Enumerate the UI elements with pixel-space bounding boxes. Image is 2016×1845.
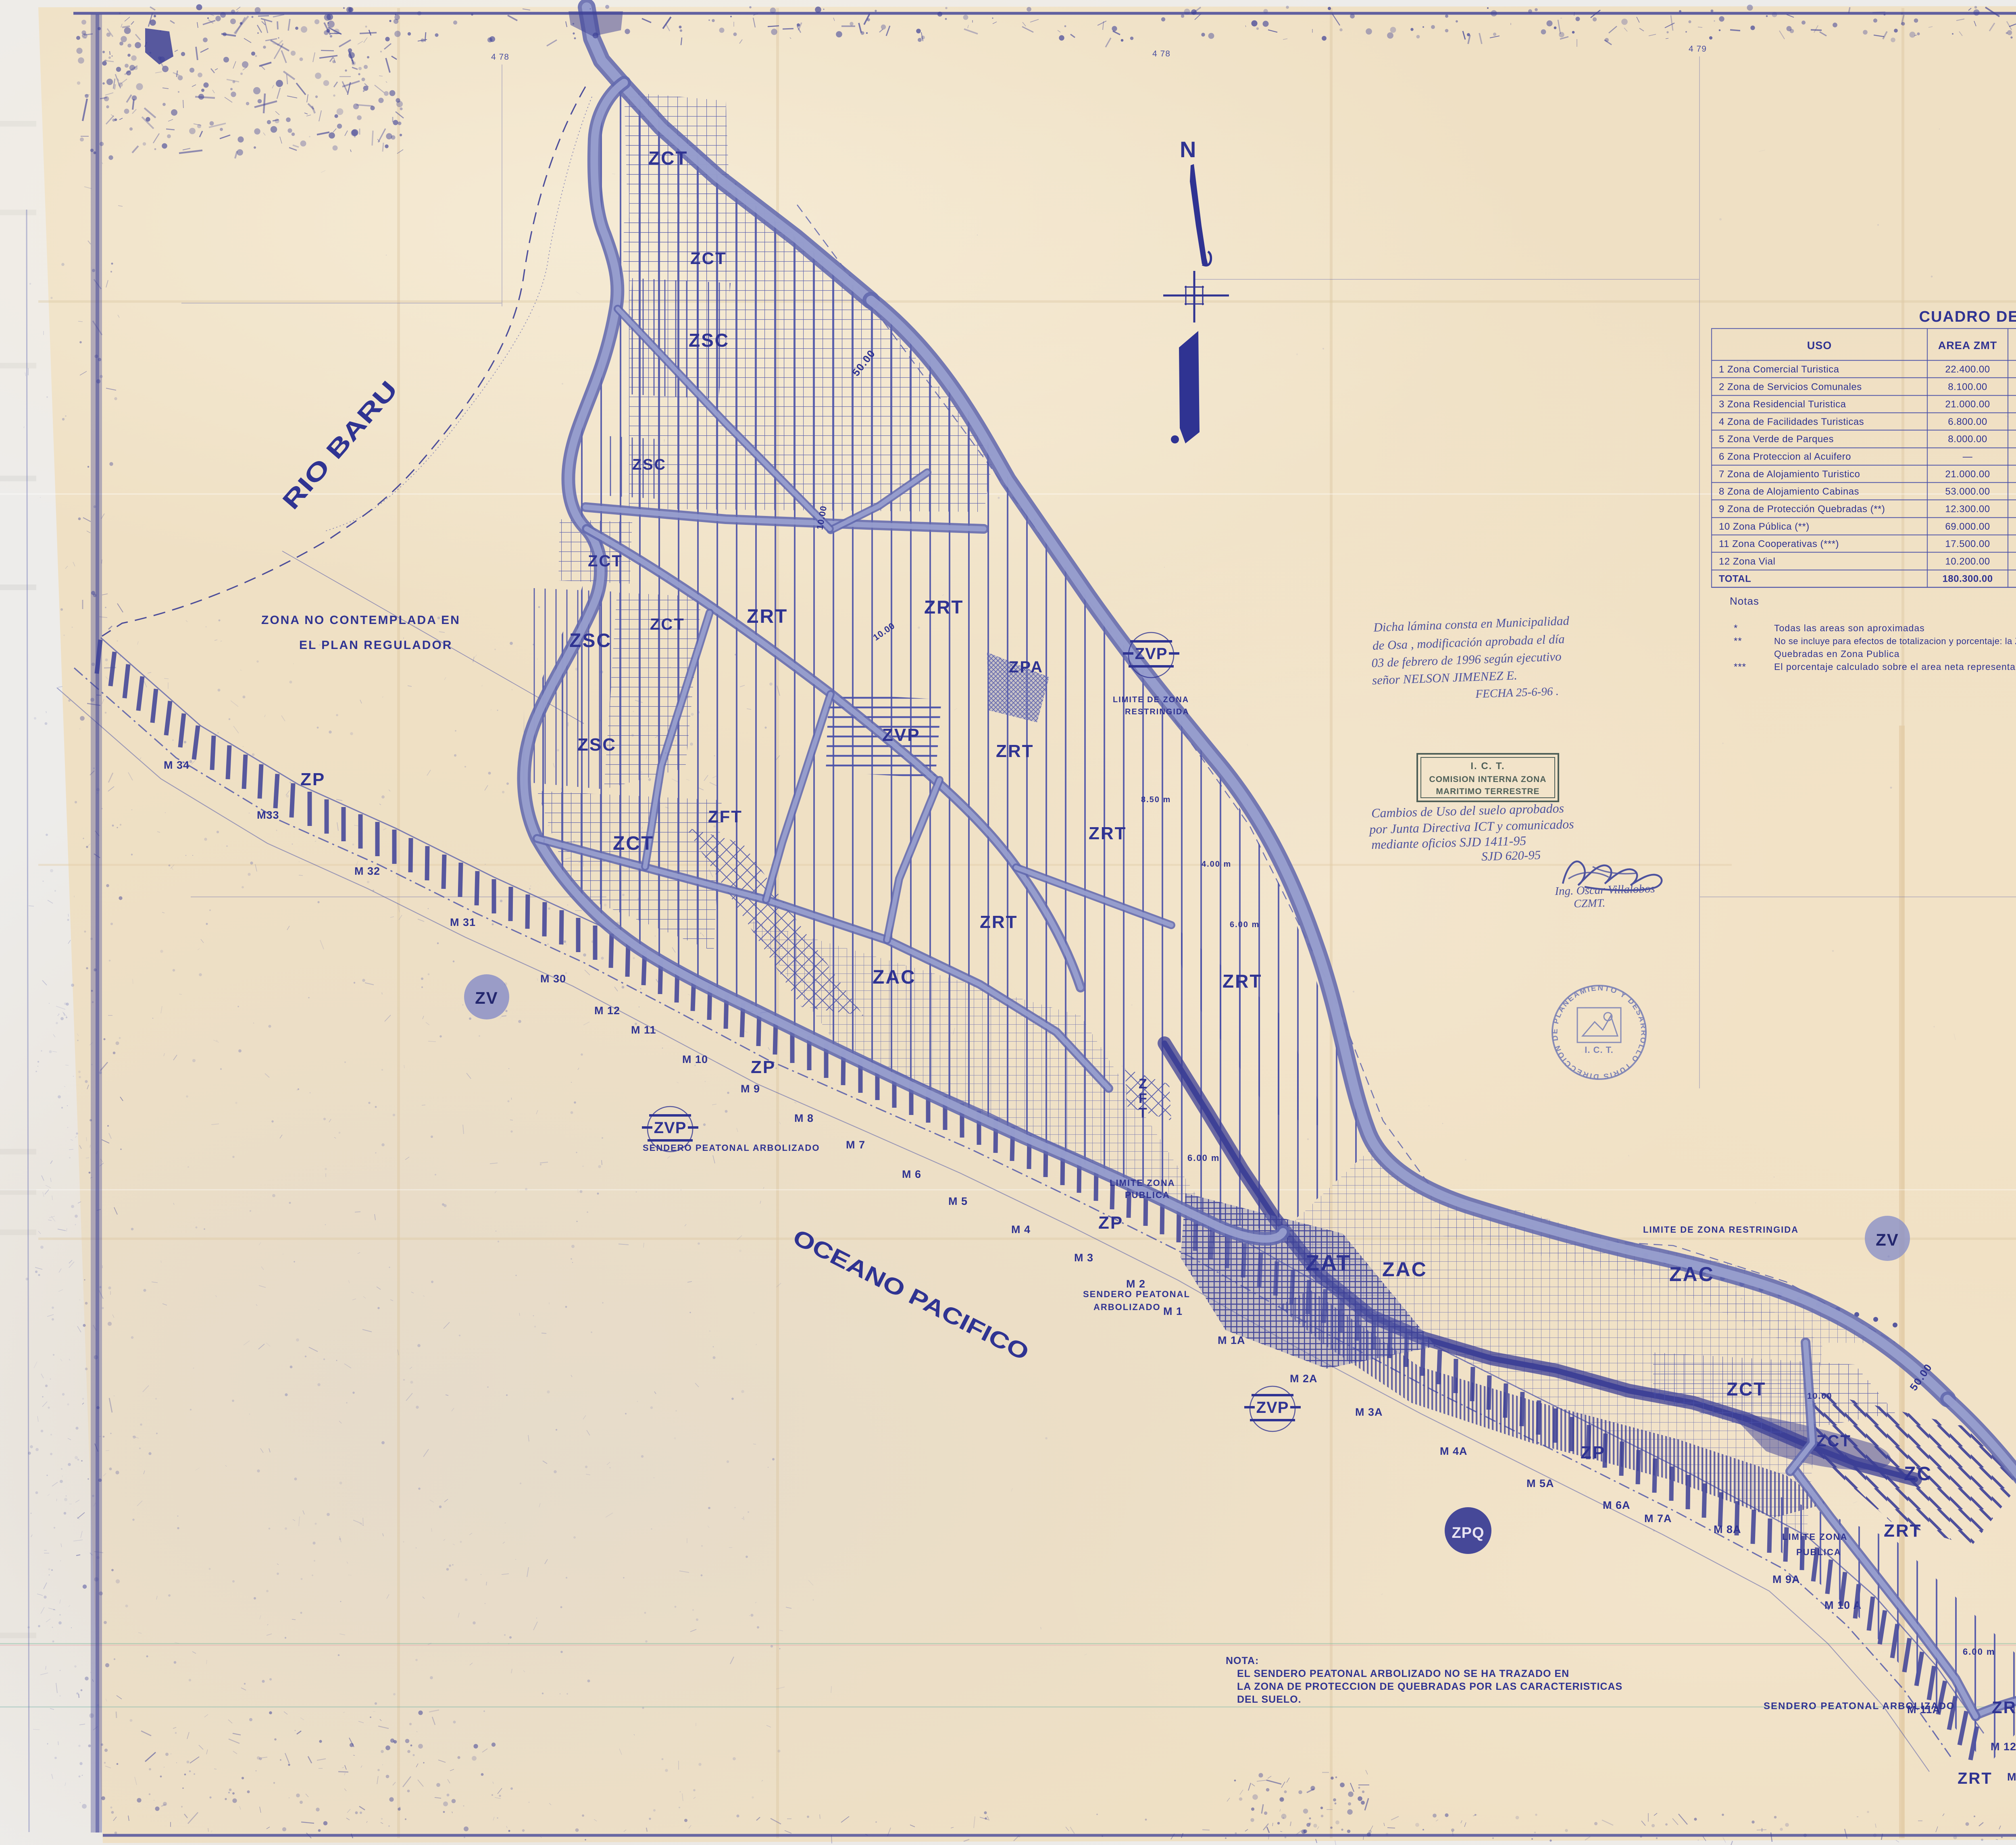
svg-text:TOTAL: TOTAL [1719, 574, 1751, 584]
svg-text:ZSC: ZSC [577, 735, 616, 755]
svg-text:M 4A: M 4A [1440, 1445, 1468, 1457]
svg-text:M 7A: M 7A [1644, 1512, 1672, 1525]
svg-text:M33: M33 [257, 809, 279, 821]
svg-text:M 30: M 30 [540, 973, 566, 985]
svg-text:M 2: M 2 [1126, 1278, 1145, 1290]
svg-text:ZAC: ZAC [1669, 1263, 1714, 1285]
svg-text:SJD 620-95: SJD 620-95 [1481, 848, 1541, 863]
svg-text:ZRT: ZRT [1223, 971, 1262, 992]
svg-text:PUBLICA: PUBLICA [1796, 1547, 1841, 1557]
svg-text:ZVP: ZVP [654, 1119, 687, 1137]
svg-text:I. C. T.: I. C. T. [1470, 761, 1505, 772]
svg-text:ZCT: ZCT [588, 552, 623, 570]
svg-text:ZP: ZP [1581, 1443, 1606, 1462]
svg-text:ZRT: ZRT [1089, 824, 1127, 843]
svg-text:ZV: ZV [475, 988, 498, 1007]
svg-text:ZRT: ZRT [1884, 1521, 1922, 1541]
svg-text:N: N [1180, 137, 1196, 162]
svg-text:53.000.00: 53.000.00 [1945, 486, 1990, 497]
svg-text:Notas: Notas [1730, 595, 1759, 607]
svg-text:ZCT: ZCT [613, 833, 654, 854]
svg-text:ZRT: ZRT [924, 597, 964, 618]
svg-text:USO: USO [1807, 339, 1832, 352]
svg-text:LIMITE DE ZONA RESTRINGIDA: LIMITE DE ZONA RESTRINGIDA [1643, 1225, 1799, 1235]
svg-text:21.000.00: 21.000.00 [1945, 469, 1990, 480]
svg-text:RESTRINGIDA: RESTRINGIDA [1125, 707, 1189, 716]
svg-text:8.100.00: 8.100.00 [1948, 381, 1987, 392]
svg-text:M 34: M 34 [164, 759, 190, 771]
svg-text:M 10: M 10 [682, 1053, 708, 1065]
svg-text:4 79: 4 79 [1689, 44, 1707, 54]
svg-text:M 5: M 5 [948, 1195, 968, 1207]
svg-text:**: ** [1734, 636, 1742, 647]
svg-text:4.00 m: 4.00 m [1202, 860, 1231, 869]
svg-text:ZC: ZC [1904, 1463, 1932, 1485]
svg-text:8 Zona de Alojamiento Cabinas: 8 Zona de Alojamiento Cabinas [1719, 486, 1859, 497]
svg-text:180.300.00: 180.300.00 [1942, 574, 1993, 584]
svg-text:NOTA:: NOTA: [1226, 1655, 1259, 1666]
svg-text:ZAC: ZAC [1382, 1258, 1427, 1281]
svg-text:M 11: M 11 [631, 1024, 656, 1036]
svg-text:M 31: M 31 [450, 916, 476, 928]
svg-text:M 7: M 7 [846, 1139, 865, 1151]
svg-text:M 8A: M 8A [1714, 1523, 1741, 1535]
svg-text:CUADRO DE AREAS (*): CUADRO DE AREAS (*) [1919, 308, 2016, 325]
svg-text:El porcentaje calculado sobre: El porcentaje calculado sobre el area ne… [1774, 661, 2016, 672]
svg-text:7 Zona de Alojamiento Turisti: 7 Zona de Alojamiento Turistico [1719, 469, 1860, 480]
svg-text:ZCT: ZCT [690, 249, 727, 268]
svg-text:8.000.00: 8.000.00 [1948, 434, 1987, 445]
svg-text:EL SENDERO PEATONAL ARBOLIZ: EL SENDERO PEATONAL ARBOLIZADO NO SE HA … [1237, 1668, 1569, 1679]
svg-text:ZFT: ZFT [708, 807, 743, 826]
svg-text:T: T [1139, 1105, 1147, 1121]
svg-text:ZPQ: ZPQ [1452, 1525, 1484, 1541]
svg-text:9 Zona de Protección Quebrada: 9 Zona de Protección Quebradas (**) [1719, 503, 1885, 514]
svg-text:***: *** [1734, 661, 1746, 672]
svg-text:17.500.00: 17.500.00 [1945, 539, 1990, 549]
svg-text:M 8: M 8 [794, 1112, 814, 1124]
svg-text:12 Zona Vial: 12 Zona Vial [1719, 556, 1775, 567]
svg-text:DEL SUELO.: DEL SUELO. [1237, 1694, 1302, 1705]
svg-text:No se incluye para efectos de: No se incluye para efectos de totalizaci… [1774, 636, 2016, 646]
svg-text:F: F [1139, 1091, 1147, 1106]
svg-text:ZCT: ZCT [650, 616, 685, 633]
svg-text:8.50 m: 8.50 m [1141, 795, 1171, 804]
svg-text:EL PLAN REGULADOR: EL PLAN REGULADOR [299, 639, 452, 652]
svg-text:MARITIMO TERRESTRE: MARITIMO TERRESTRE [1436, 787, 1539, 796]
svg-text:ZCT: ZCT [1727, 1379, 1766, 1400]
svg-text:LIMITE ZONA: LIMITE ZONA [1110, 1178, 1175, 1188]
svg-text:ZAC: ZAC [873, 967, 916, 988]
svg-text:ZP: ZP [1098, 1213, 1123, 1233]
svg-text:ZSC: ZSC [632, 456, 666, 473]
svg-text:CZMT.: CZMT. [1574, 897, 1606, 910]
svg-text:M 32: M 32 [354, 865, 380, 877]
svg-text:ZSC: ZSC [689, 330, 729, 351]
svg-text:SENDERO PEATONAL: SENDERO PEATONAL [1083, 1289, 1190, 1299]
svg-text:10.00: 10.00 [1807, 1392, 1833, 1401]
svg-text:6.00 m: 6.00 m [1963, 1647, 1995, 1657]
svg-text:4 78: 4 78 [1152, 49, 1170, 58]
svg-text:3 Zona Residencial Turistica: 3 Zona Residencial Turistica [1719, 399, 1846, 410]
svg-text:Todas las areas son aproximada: Todas las areas son aproximadas [1774, 623, 1925, 633]
svg-text:M 6A: M 6A [1603, 1499, 1631, 1511]
svg-text:M 1: M 1 [1163, 1305, 1183, 1317]
svg-text:10.200.00: 10.200.00 [1945, 556, 1990, 567]
svg-text:5 Zona Verde de Parques: 5 Zona Verde de Parques [1719, 434, 1834, 445]
svg-text:Quebradas en Zona Publica: Quebradas en Zona Publica [1774, 649, 1899, 659]
svg-text:PUBLICA: PUBLICA [1125, 1190, 1170, 1200]
svg-text:4 Zona de Facilidades Turisti: 4 Zona de Facilidades Turisticas [1719, 416, 1864, 427]
svg-text:ZCT: ZCT [648, 148, 688, 168]
svg-text:*: * [1734, 623, 1738, 634]
svg-text:12.300.00: 12.300.00 [1945, 503, 1990, 514]
svg-text:6.00 m: 6.00 m [1230, 920, 1260, 929]
svg-text:6.00 m: 6.00 m [1187, 1153, 1220, 1163]
svg-text:ZVP: ZVP [1256, 1399, 1289, 1417]
svg-text:M 12: M 12 [594, 1005, 620, 1017]
svg-text:ZVP: ZVP [882, 725, 921, 745]
svg-text:69.000.00: 69.000.00 [1945, 521, 1990, 532]
svg-text:ZP: ZP [751, 1057, 776, 1077]
svg-text:—: — [1963, 451, 1973, 462]
svg-text:2 Zona de Servicios Comunales: 2 Zona de Servicios Comunales [1719, 381, 1862, 392]
svg-text:ZRT: ZRT [747, 606, 788, 627]
svg-text:11 Zona Cooperativas (***): 11 Zona Cooperativas (***) [1719, 539, 1839, 549]
svg-text:ZVP: ZVP [1135, 645, 1168, 663]
svg-text:COMISION INTERNA ZONA: COMISION INTERNA ZONA [1429, 775, 1547, 784]
svg-text:1 Zona Comercial Turistica: 1 Zona Comercial Turistica [1719, 364, 1839, 375]
svg-text:M 3A: M 3A [1355, 1406, 1383, 1418]
svg-text:LIMITE ZONA: LIMITE ZONA [1782, 1532, 1848, 1542]
svg-text:ZONA NO CONTEMPLADA EN: ZONA NO CONTEMPLADA EN [261, 614, 460, 627]
svg-text:M 2A: M 2A [1290, 1373, 1318, 1385]
svg-text:M 13A: M 13A [2007, 1771, 2016, 1783]
svg-text:6 Zona Proteccion al Acuifero: 6 Zona Proteccion al Acuifero [1719, 451, 1851, 462]
svg-text:M 9: M 9 [741, 1083, 760, 1095]
svg-text:M 4: M 4 [1011, 1223, 1031, 1236]
svg-text:ZRT: ZRT [1958, 1770, 1993, 1787]
svg-text:LIMITE DE ZONA: LIMITE DE ZONA [1113, 695, 1189, 704]
svg-text:4 78: 4 78 [491, 52, 509, 62]
svg-text:ARBOLIZADO: ARBOLIZADO [1093, 1302, 1161, 1312]
svg-text:I. C. T.: I. C. T. [1585, 1045, 1614, 1055]
svg-text:ZSC: ZSC [569, 630, 612, 651]
svg-text:M 6: M 6 [902, 1168, 921, 1180]
svg-text:Z: Z [1139, 1076, 1147, 1092]
svg-text:22.400.00: 22.400.00 [1945, 364, 1990, 375]
svg-text:ZP: ZP [300, 770, 325, 789]
svg-text:21.000.00: 21.000.00 [1945, 399, 1990, 410]
svg-text:10 Zona Pública (**): 10 Zona Pública (**) [1719, 521, 1810, 532]
svg-text:SENDERO PEATONAL ARBOLIZADO: SENDERO PEATONAL ARBOLIZADO [1764, 1701, 1955, 1712]
svg-text:ZAT: ZAT [1306, 1250, 1352, 1275]
svg-text:6.800.00: 6.800.00 [1948, 416, 1987, 427]
svg-text:ZCT: ZCT [1816, 1432, 1851, 1450]
svg-text:AREA ZMT: AREA ZMT [1938, 339, 1997, 352]
svg-text:ZRT: ZRT [996, 741, 1034, 761]
svg-text:M 3: M 3 [1074, 1252, 1093, 1264]
svg-text:ZPA: ZPA [1009, 658, 1043, 676]
svg-text:ZV: ZV [1876, 1230, 1899, 1249]
svg-text:M 9A: M 9A [1772, 1573, 1800, 1585]
svg-text:M 5A: M 5A [1527, 1477, 1554, 1489]
svg-text:LA ZONA DE PROTECCION DE: LA ZONA DE PROTECCION DE QUEBRADAS POR L… [1237, 1681, 1622, 1692]
svg-text:ZRT: ZRT [1992, 1698, 2016, 1717]
svg-text:ZRT: ZRT [980, 912, 1018, 932]
